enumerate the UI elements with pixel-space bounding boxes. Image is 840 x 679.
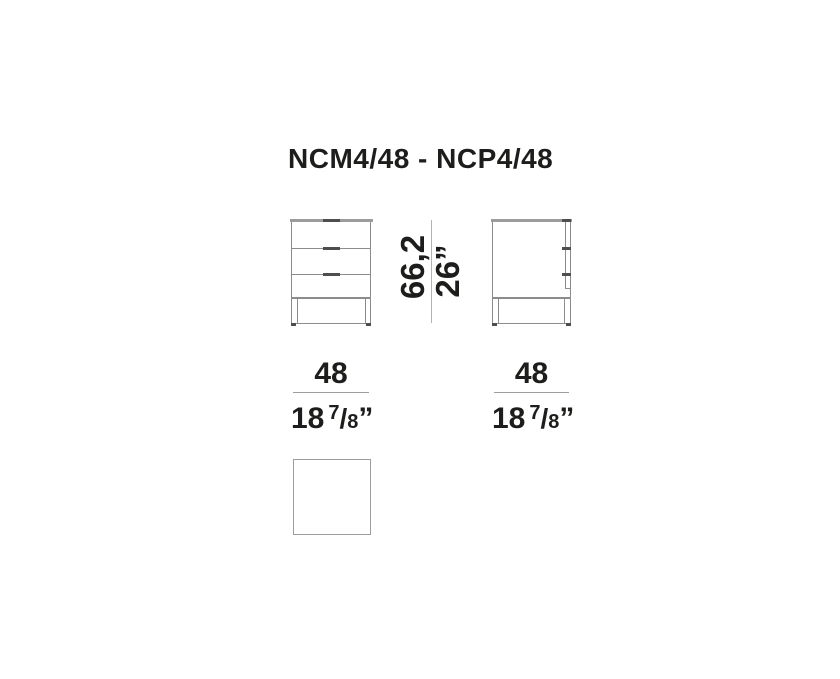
base-leg-line <box>297 298 298 324</box>
product-code-title: NCM4/48 - NCP4/48 <box>288 143 553 175</box>
height-dimension-inches: 26” <box>429 244 467 297</box>
foot-glide <box>366 323 371 326</box>
inches-whole: 18 <box>492 402 525 435</box>
drawer-handle <box>323 247 340 250</box>
base-leg-line <box>365 298 366 324</box>
inches-whole: 18 <box>291 402 324 435</box>
spec-sheet: NCM4/48 - NCP4/48 66,2 26” 48 <box>0 0 840 679</box>
fraction-denominator: 8 <box>347 411 358 433</box>
front-width-dimension: 48 187/8” <box>291 357 371 440</box>
side-width-inches: 187/8” <box>492 395 571 440</box>
drawer-handle <box>562 247 571 250</box>
inches-mark: ” <box>358 402 373 435</box>
foot-glide <box>492 323 497 326</box>
foot-glide <box>566 323 571 326</box>
cabinet-body-outline <box>492 220 571 298</box>
base-leg-line <box>498 298 499 324</box>
side-view-drawing <box>492 218 571 328</box>
front-width-inches: 187/8” <box>291 395 371 440</box>
drawer-front-edge-line <box>565 222 566 288</box>
top-view-drawing <box>293 459 371 535</box>
inches-mark: ” <box>559 402 574 435</box>
fraction-denominator: 8 <box>548 411 559 433</box>
base-frame-outline <box>492 298 571 324</box>
front-width-cm: 48 <box>291 357 371 390</box>
front-view-drawing <box>291 218 372 328</box>
base-frame-outline <box>291 298 371 324</box>
drawer-front-bottom-line <box>565 288 571 289</box>
side-width-dimension: 48 187/8” <box>492 357 571 440</box>
drawer-handle <box>562 273 571 276</box>
base-leg-line <box>564 298 565 324</box>
drawer-handle <box>323 219 340 222</box>
side-width-cm: 48 <box>492 357 571 390</box>
fraction-numerator: 7 <box>328 402 339 424</box>
cabinet-body-outline <box>291 220 371 298</box>
cabinet-top-surface <box>491 219 572 222</box>
drawer-handle <box>323 273 340 276</box>
foot-glide <box>291 323 296 326</box>
dimension-rule-line <box>494 392 569 393</box>
dimension-rule-line <box>293 392 369 393</box>
height-dimension-cm: 66,2 <box>394 235 432 299</box>
fraction-numerator: 7 <box>529 402 540 424</box>
drawer-handle <box>562 219 571 222</box>
